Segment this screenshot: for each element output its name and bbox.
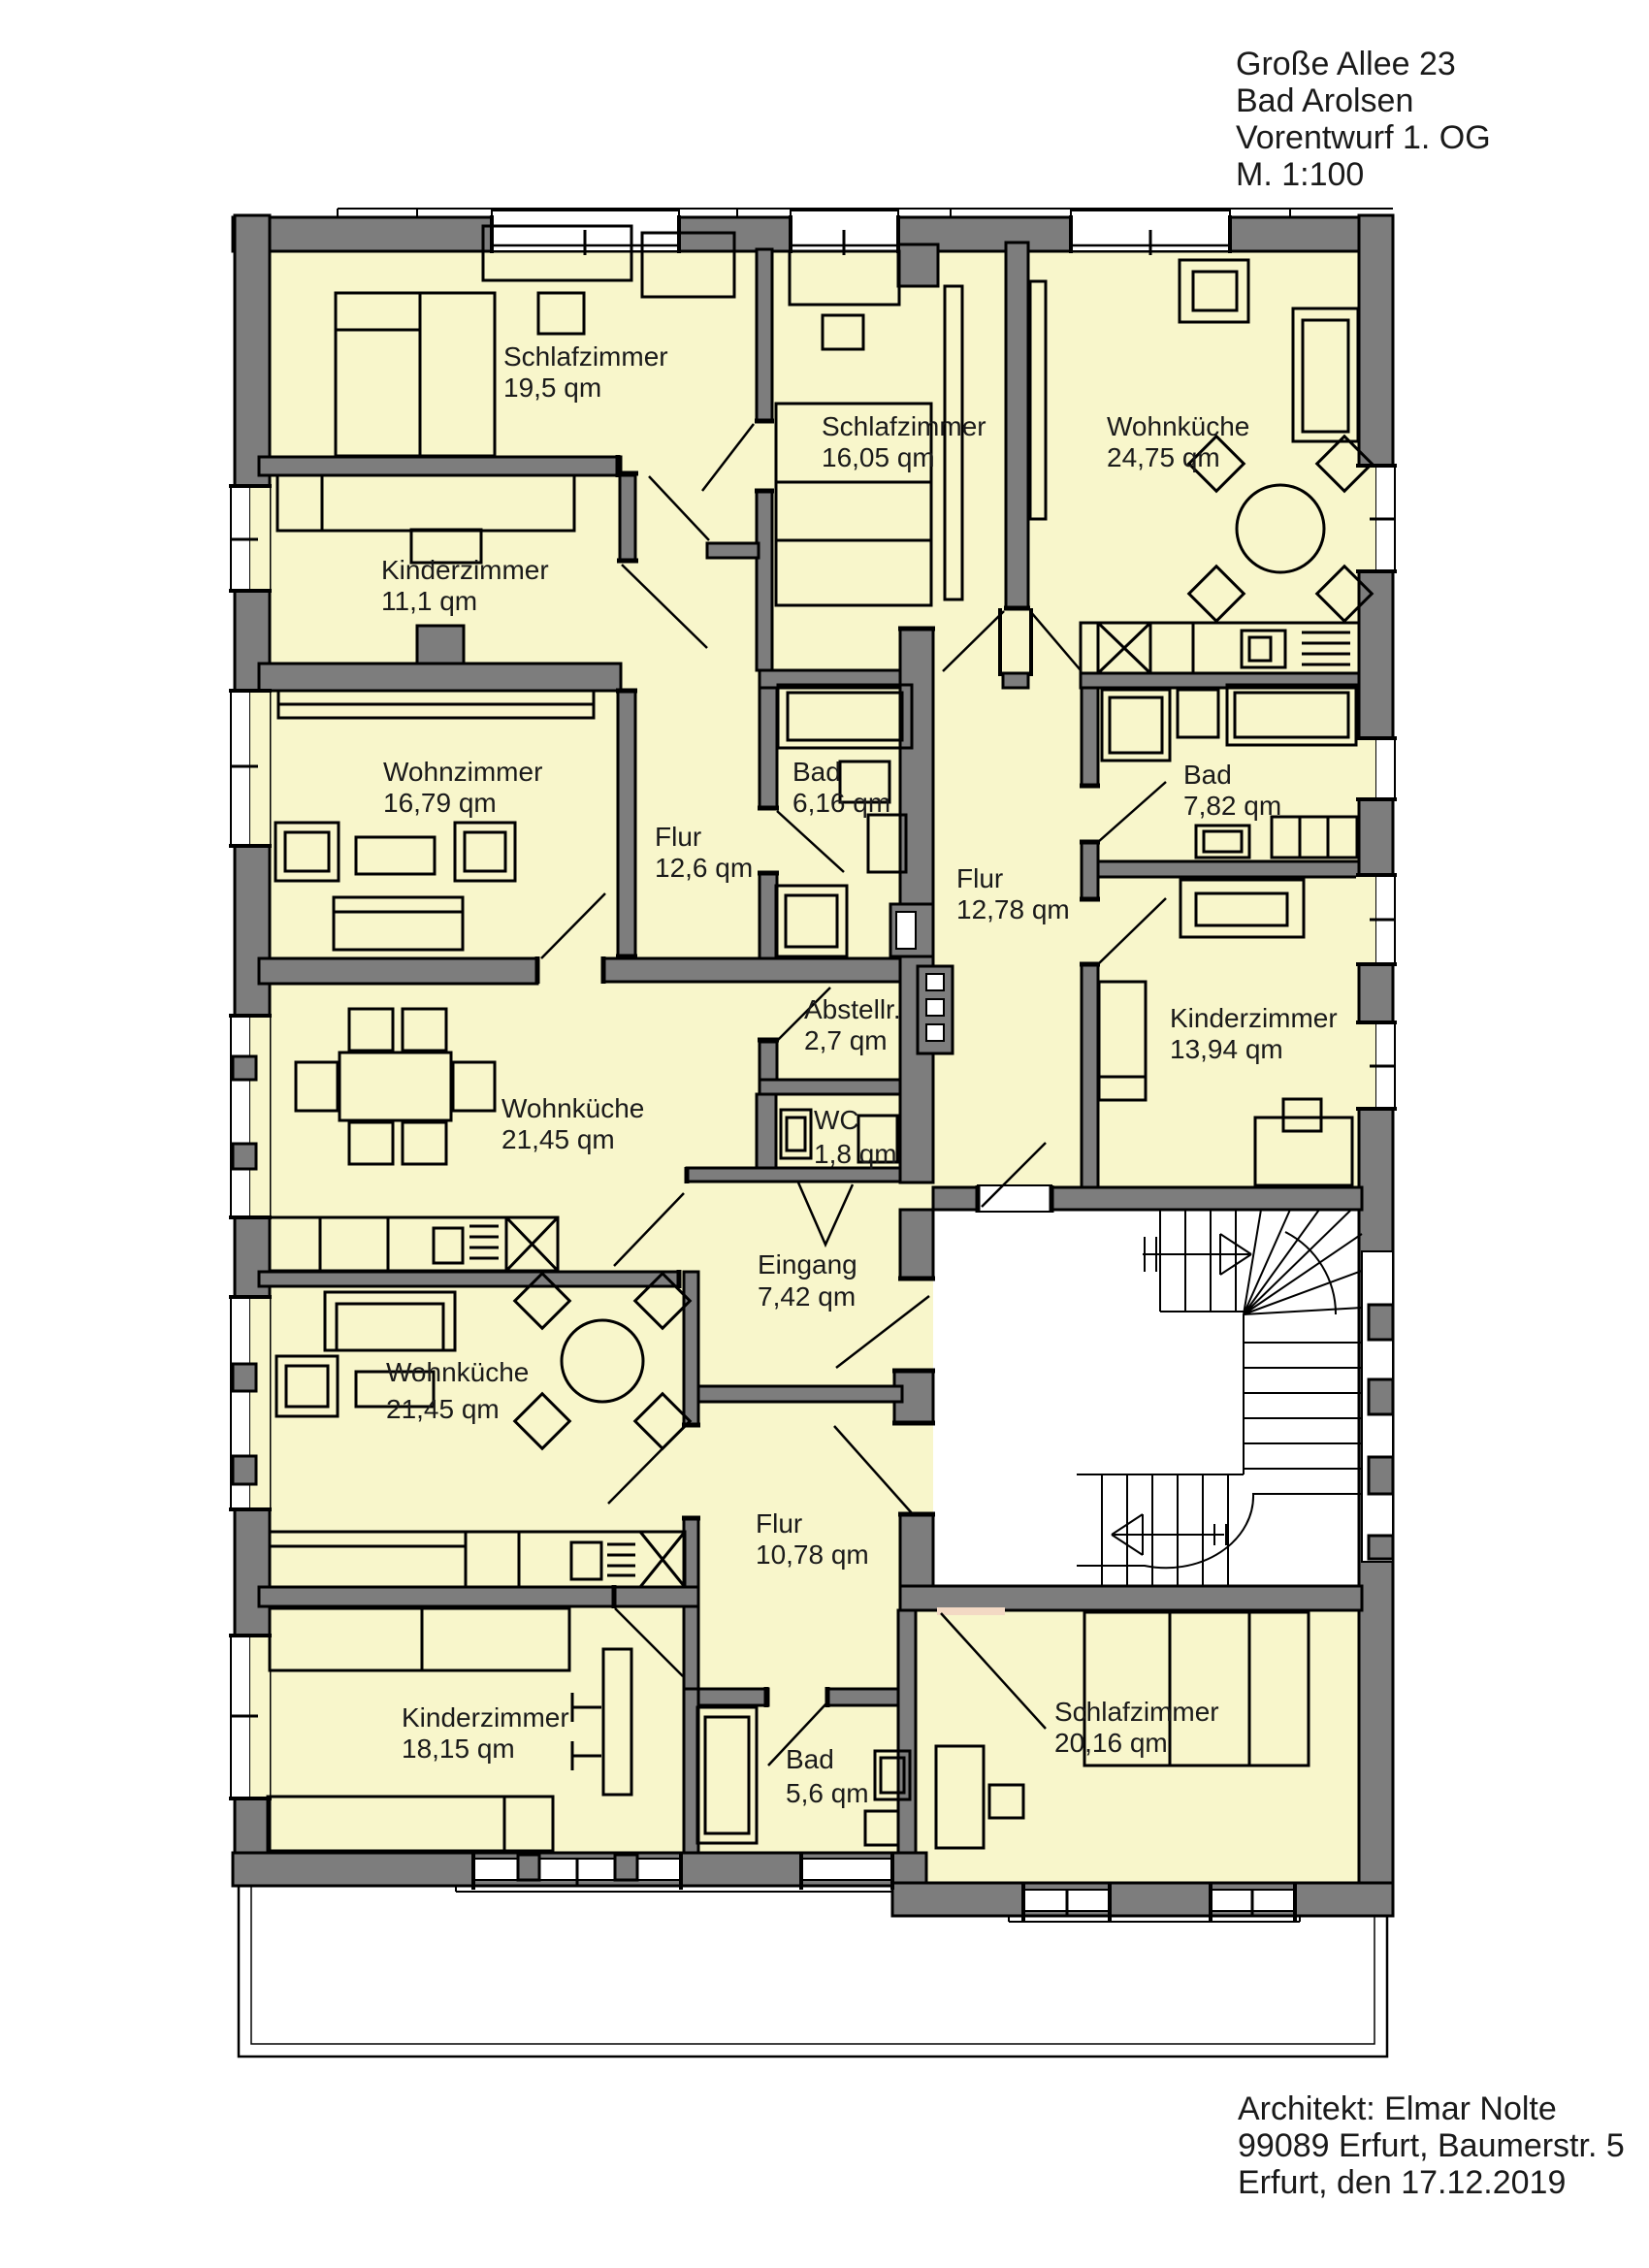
svg-text:21,45 qm: 21,45 qm — [501, 1124, 615, 1154]
svg-text:Kinderzimmer: Kinderzimmer — [402, 1702, 569, 1733]
svg-text:24,75 qm: 24,75 qm — [1107, 442, 1220, 472]
svg-text:7,82 qm: 7,82 qm — [1183, 791, 1281, 821]
svg-text:Flur: Flur — [655, 822, 701, 852]
svg-text:Wohnzimmer: Wohnzimmer — [383, 757, 542, 787]
svg-text:Wohnküche: Wohnküche — [1107, 411, 1249, 441]
svg-text:Erfurt, den 17.12.2019: Erfurt, den 17.12.2019 — [1238, 2164, 1566, 2201]
svg-text:Flur: Flur — [956, 863, 1003, 893]
svg-text:21,45 qm: 21,45 qm — [386, 1394, 500, 1424]
svg-text:13,94 qm: 13,94 qm — [1170, 1034, 1283, 1064]
svg-text:19,5 qm: 19,5 qm — [503, 373, 601, 403]
svg-text:7,42 qm: 7,42 qm — [758, 1281, 856, 1312]
svg-text:Bad: Bad — [1183, 760, 1232, 790]
svg-text:20,16 qm: 20,16 qm — [1054, 1728, 1168, 1758]
svg-text:Wohnküche: Wohnküche — [386, 1357, 529, 1387]
svg-text:12,6 qm: 12,6 qm — [655, 853, 753, 883]
svg-text:Abstellr.: Abstellr. — [804, 994, 901, 1024]
svg-text:11,1 qm: 11,1 qm — [381, 586, 477, 616]
svg-text:99089 Erfurt, Baumerstr. 5: 99089 Erfurt, Baumerstr. 5 — [1238, 2127, 1625, 2164]
svg-text:12,78 qm: 12,78 qm — [956, 894, 1070, 924]
svg-text:Schlafzimmer: Schlafzimmer — [822, 411, 986, 441]
svg-text:18,15 qm: 18,15 qm — [402, 1733, 515, 1764]
svg-text:16,79 qm: 16,79 qm — [383, 788, 497, 818]
svg-text:Bad Arolsen: Bad Arolsen — [1236, 82, 1413, 119]
svg-text:Bad: Bad — [792, 757, 841, 787]
svg-text:Architekt: Elmar Nolte: Architekt: Elmar Nolte — [1238, 2090, 1557, 2127]
svg-text:16,05 qm: 16,05 qm — [822, 442, 935, 472]
svg-text:Flur: Flur — [756, 1508, 802, 1539]
svg-text:5,6 qm: 5,6 qm — [786, 1778, 869, 1808]
svg-text:Wohnküche: Wohnküche — [501, 1093, 644, 1123]
svg-text:Bad: Bad — [786, 1744, 834, 1774]
svg-text:M. 1:100: M. 1:100 — [1236, 156, 1364, 193]
svg-text:10,78 qm: 10,78 qm — [756, 1539, 869, 1570]
svg-text:Eingang: Eingang — [758, 1249, 857, 1280]
svg-text:Schlafzimmer: Schlafzimmer — [1054, 1697, 1219, 1727]
svg-text:Schlafzimmer: Schlafzimmer — [503, 341, 668, 372]
svg-text:Große Allee 23: Große Allee 23 — [1236, 46, 1456, 82]
svg-text:Kinderzimmer: Kinderzimmer — [381, 555, 549, 585]
svg-text:WC: WC — [814, 1105, 859, 1135]
svg-text:6,16 qm: 6,16 qm — [792, 788, 890, 818]
svg-text:Vorentwurf 1. OG: Vorentwurf 1. OG — [1236, 119, 1491, 156]
svg-text:2,7 qm: 2,7 qm — [804, 1025, 888, 1055]
svg-text:Kinderzimmer: Kinderzimmer — [1170, 1003, 1338, 1033]
svg-text:1,8 qm: 1,8 qm — [814, 1139, 897, 1169]
